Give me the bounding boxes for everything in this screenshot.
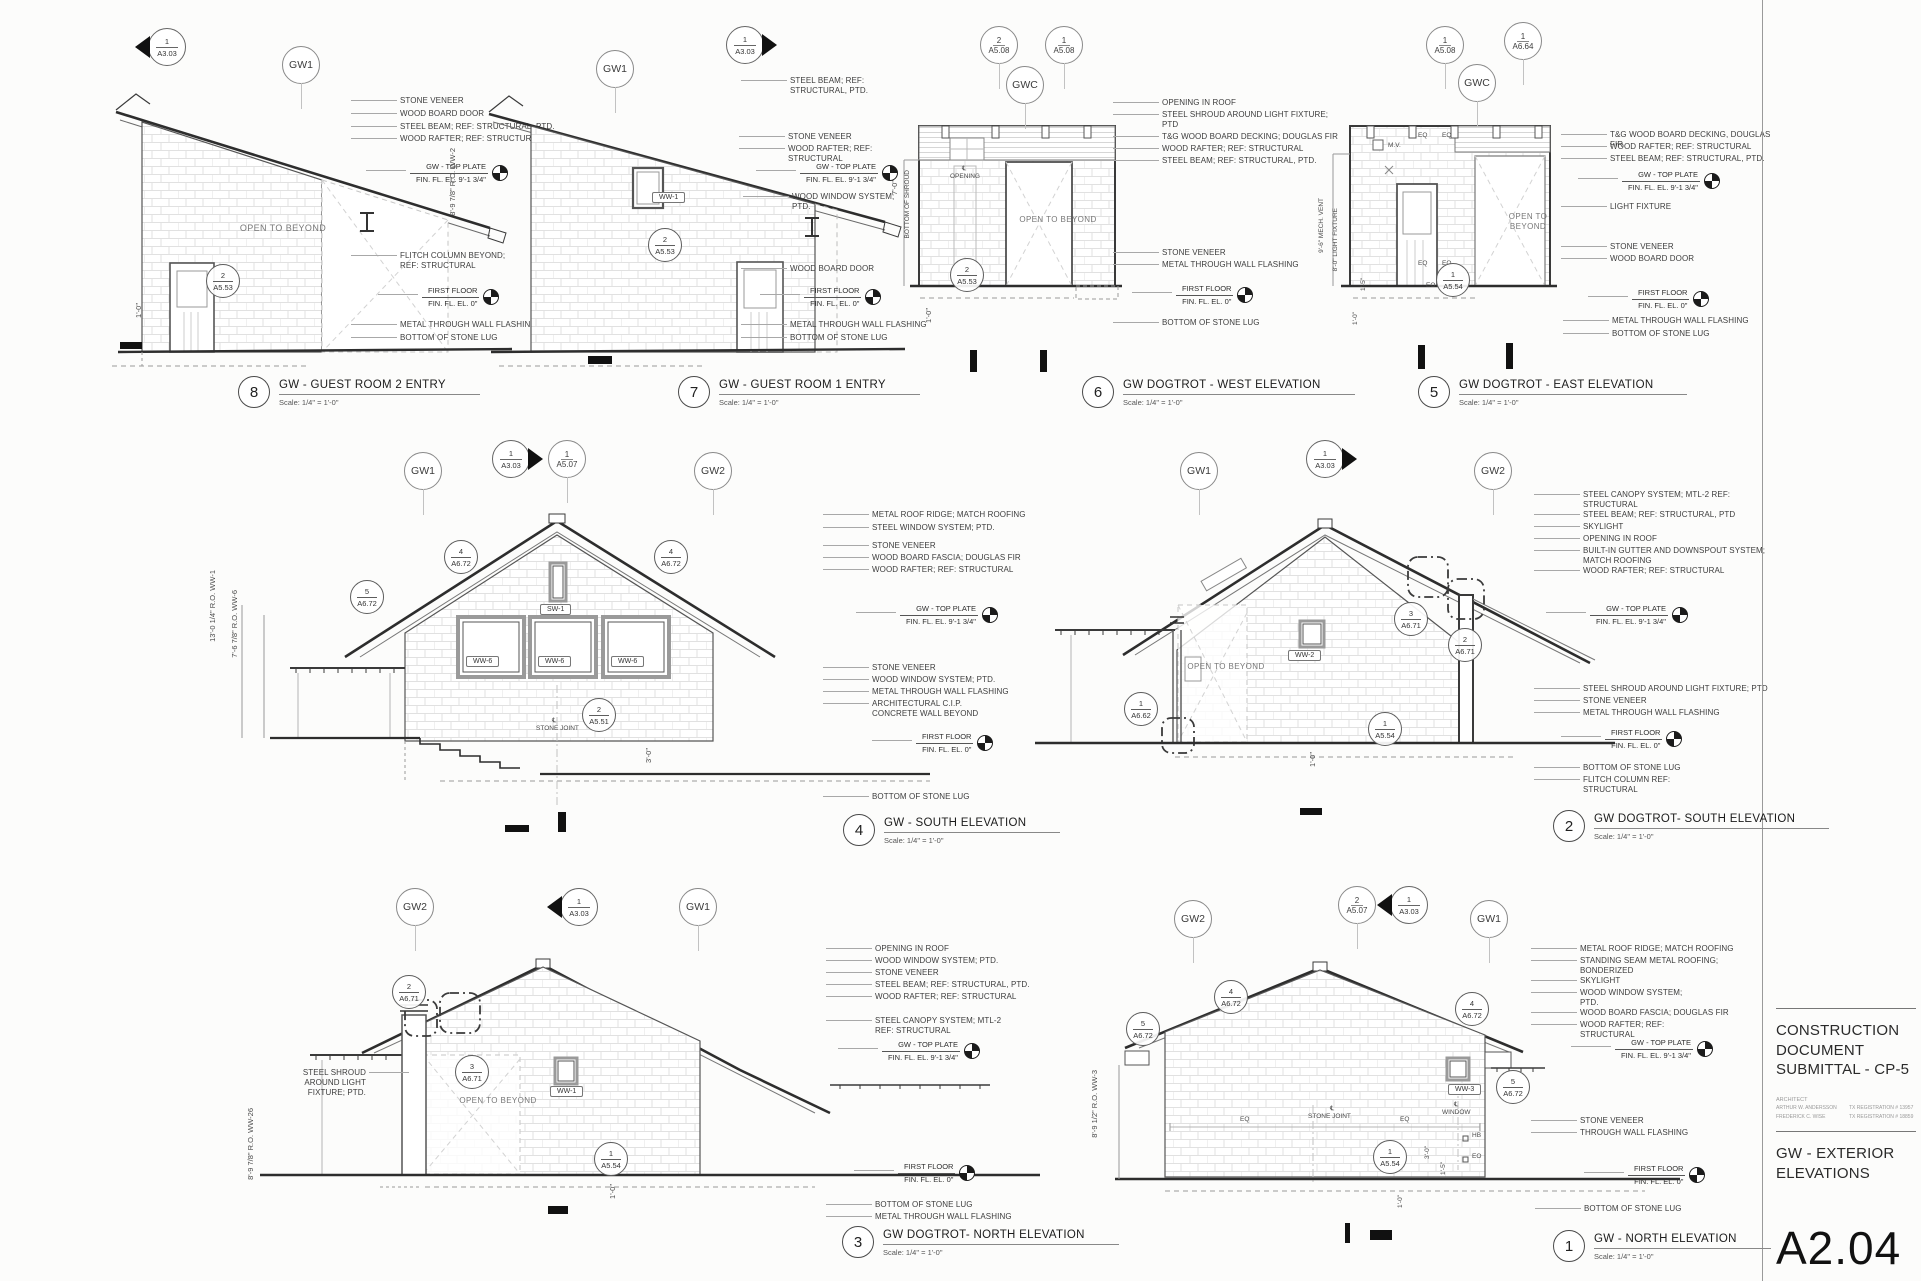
annotation: METAL ROOF RIDGE; MATCH ROOFING [872, 510, 1037, 520]
scale-label: Scale: 1/4" = 1'-0" [1459, 398, 1687, 407]
section-arrow-icon [762, 34, 777, 56]
drawing-title-text: GW - GUEST ROOM 2 ENTRY [279, 376, 480, 395]
eo-label: EO [1426, 282, 1435, 289]
window-tag: WW-3 [1448, 1084, 1481, 1095]
section-marker: 1A3.03 [492, 440, 530, 478]
detail-callout: 5A6.72 [1126, 1012, 1160, 1046]
eq-label: EQ [1418, 260, 1427, 267]
annotation: STONE VENEER [1580, 1116, 1730, 1126]
architect-registration: TX REGISTRATION # 18859 [1849, 1113, 1916, 1122]
drawing-title-text: GW - NORTH ELEVATION [1594, 1230, 1771, 1249]
annotation: METAL THROUGH WALL FLASHING [1612, 316, 1772, 326]
section-arrow-icon [1342, 448, 1357, 470]
grid-bubble: GW1 [596, 50, 634, 88]
dimension-label: 3'-0" [644, 748, 653, 763]
drawing-number: 5 [1418, 376, 1450, 408]
drawing-title: 5 GW DOGTROT - EAST ELEVATIONScale: 1/4"… [1418, 376, 1687, 408]
grid-bubble: GWC [1006, 66, 1044, 104]
eq-label: EQ [1442, 132, 1451, 139]
drawing-title-text: GW DOGTROT - WEST ELEVATION [1123, 376, 1355, 395]
detail-callout: 2A5.53 [950, 258, 984, 292]
window-tag: WW-6 [538, 656, 571, 667]
drawing-number: 7 [678, 376, 710, 408]
detail-callout: 1A5.54 [1368, 712, 1402, 746]
detail-callout: 5A6.72 [1496, 1070, 1530, 1104]
centerline-symbol: ℄ [552, 716, 556, 724]
dimension-label: 8'-9 1/2" R.O. WW-3 [1090, 1070, 1099, 1138]
dimension-label: 7'-6 7/8" R.O. WW-6 [230, 590, 239, 658]
drawing-title-text: GW DOGTROT - EAST ELEVATION [1459, 376, 1687, 395]
level-datum-icon [1689, 1167, 1705, 1183]
window-tag: SW-1 [540, 604, 571, 615]
dimension-label: 7'-0" [890, 180, 899, 195]
annotation: BOTTOM OF STONE LUG [1584, 1204, 1734, 1214]
detail-callout: 4A6.72 [444, 540, 478, 574]
drawing-number: 8 [238, 376, 270, 408]
level-datum: GW - TOP PLATEFIN. FL. EL. 9'-1 3/4" [882, 1040, 980, 1063]
annotation: METAL THROUGH WALL FLASHING [875, 1212, 1040, 1222]
section-cut-bar [1370, 1230, 1392, 1240]
level-datum-icon [1666, 731, 1682, 747]
annotation: WOOD RAFTER; REF: STRUCTURAL [1580, 1020, 1695, 1040]
drawing-title-text: GW - SOUTH ELEVATION [884, 814, 1060, 833]
annotation: STONE VENEER [872, 663, 1022, 673]
dimension-label: 1'-0" [134, 303, 143, 318]
centerline-symbol: ℄ [962, 164, 966, 172]
stone-joint-label: STONE JOINT [536, 725, 579, 732]
grid-bubble: 1A5.08 [1045, 26, 1083, 64]
dimension-label: 1'-5" [1440, 1162, 1447, 1175]
architect-info: ARTHUR W. ANDERSSON TX REGISTRATION # 13… [1776, 1104, 1916, 1121]
level-datum-icon [1237, 287, 1253, 303]
grid-bubble: GW1 [1470, 900, 1508, 938]
dimension-label: 1'-0" [924, 308, 933, 323]
section-cut-bar [588, 356, 612, 364]
window-tag: WW-6 [611, 656, 644, 667]
scale-label: Scale: 1/4" = 1'-0" [1123, 398, 1355, 407]
grid-bubble: GW2 [694, 452, 732, 490]
detail-callout: 4A6.72 [1455, 992, 1489, 1026]
drawing-title: 2 GW DOGTROT- SOUTH ELEVATIONScale: 1/4"… [1553, 810, 1829, 842]
section-cut-bar [970, 350, 977, 372]
grid-bubble: GW2 [396, 888, 434, 926]
centerline-symbol: ℄ [1330, 1104, 1334, 1112]
annotation: BOTTOM OF STONE LUG [872, 792, 1022, 802]
level-datum-icon [865, 289, 881, 305]
detail-callout: 2A6.71 [392, 975, 426, 1009]
level-datum: FIRST FLOORFIN. FL. EL. 0" [898, 1162, 975, 1185]
annotation: BUILT-IN GUTTER AND DOWNSPOUT SYSTEM; MA… [1583, 546, 1768, 566]
drawing-number: 2 [1553, 810, 1585, 842]
drawing-title: 4 GW - SOUTH ELEVATIONScale: 1/4" = 1'-0… [843, 814, 1060, 846]
annotation: ARCHITECTURAL C.I.P. CONCRETE WALL BEYON… [872, 699, 992, 719]
section-marker: 1A3.03 [1306, 440, 1344, 478]
section-cut-bar [120, 342, 142, 349]
elevation-5-dogtrot-east: 1A5.08 1A6.64 GWC EQ EQ M.V. 9'-6" MECH.… [1290, 20, 1790, 420]
hose-bib-label: HB [1472, 1132, 1481, 1139]
annotation: STEEL BEAM; REF: STRUCTURAL, PTD. [875, 980, 1045, 990]
annotation: THROUGH WALL FLASHING [1580, 1128, 1740, 1138]
drawing-title: 7 GW - GUEST ROOM 1 ENTRYScale: 1/4" = 1… [678, 376, 920, 408]
annotation: STEEL BEAM; REF: STRUCTURAL, PTD. [1610, 154, 1780, 164]
dimension-label: 8'-9 7/8" R.O. WW-26 [246, 1108, 255, 1180]
section-arrow-icon [135, 36, 150, 58]
eq-label: EQ [1240, 1116, 1249, 1123]
open-to-beyond-label: OPEN TO BEYOND [1186, 662, 1266, 672]
level-datum-icon [959, 1165, 975, 1181]
scale-label: Scale: 1/4" = 1'-0" [884, 836, 1060, 845]
section-cut-bar [558, 812, 566, 832]
level-datum: GW - TOP PLATEFIN. FL. EL. 9'-1 3/4" [1615, 1038, 1713, 1061]
annotation: METAL THROUGH WALL FLASHING [1583, 708, 1743, 718]
section-cut-bar [1418, 345, 1425, 369]
detail-callout: 5A6.72 [350, 580, 384, 614]
annotation: LIGHT FIXTURE [1610, 202, 1760, 212]
level-datum: GW - TOP PLATEFIN. FL. EL. 9'-1 3/4" [800, 162, 898, 185]
scale-label: Scale: 1/4" = 1'-0" [719, 398, 920, 407]
drawing-sheet: 1A3.03 GW1 OPEN TO BEYOND 2A5.53 1'-0" S… [0, 0, 1921, 1281]
annotation: STONE VENEER [875, 968, 1025, 978]
drawing-title: 1 GW - NORTH ELEVATIONScale: 1/4" = 1'-0… [1553, 1230, 1771, 1262]
grid-bubble: 2A5.08 [980, 26, 1018, 64]
annotation: SKYLIGHT [1583, 522, 1733, 532]
level-datum-icon [982, 607, 998, 623]
dimension-label: 13'-0 1/4" R.O. WW-1 [208, 570, 217, 642]
drawing-number: 6 [1082, 376, 1114, 408]
annotation: WOOD RAFTER; REF: STRUCTURAL [1583, 566, 1748, 576]
detail-callout: 1A5.54 [1436, 263, 1470, 297]
architect-registration: TX REGISTRATION # 13957 [1849, 1104, 1916, 1113]
level-datum: FIRST FLOORFIN. FL. EL. 0" [804, 286, 881, 309]
drawing-number: 4 [843, 814, 875, 846]
dimension-label: 1'-5" [1360, 278, 1367, 291]
dimension-label: 8'-9 7/8" R.O. WW-2 [448, 148, 457, 216]
grid-bubble: 1A6.64 [1504, 22, 1542, 60]
annotation: STEEL SHROUD AROUND LIGHT FIXTURE; PTD. [290, 1068, 366, 1098]
level-datum-icon [1704, 173, 1720, 189]
grid-bubble: 2A5.07 [1338, 886, 1376, 924]
scale-label: Scale: 1/4" = 1'-0" [883, 1248, 1119, 1257]
dimension-label: 9'-6" MECH. VENT [1318, 198, 1325, 253]
detail-callout: 4A6.72 [1214, 980, 1248, 1014]
drawing-title: 8 GW - GUEST ROOM 2 ENTRYScale: 1/4" = 1… [238, 376, 480, 408]
dimension-label: BOTTOM OF SHROUD [904, 170, 911, 239]
level-datum-icon [977, 735, 993, 751]
open-to-beyond-label: OPEN TO BEYOND [438, 1096, 558, 1106]
annotation: SKYLIGHT [1580, 976, 1730, 986]
architect-label: ARCHITECT [1776, 1096, 1916, 1105]
annotation: OPENING IN ROOF [875, 944, 1025, 954]
section-cut-bar [1506, 343, 1513, 369]
section-marker: 1A3.03 [726, 26, 764, 64]
level-datum: FIRST FLOORFIN. FL. EL. 0" [1605, 728, 1682, 751]
drawing-number: 1 [1553, 1230, 1585, 1262]
mechanical-vent-label: M.V. [1388, 142, 1401, 149]
section-arrow-icon [528, 448, 543, 470]
level-datum-icon [1693, 291, 1709, 307]
annotation: STANDING SEAM METAL ROOFING; BONDERIZED [1580, 956, 1725, 976]
scale-label: Scale: 1/4" = 1'-0" [1594, 1252, 1771, 1261]
stone-joint-label: STONE JOINT [1308, 1113, 1351, 1120]
grid-bubble: GW1 [1180, 452, 1218, 490]
elevation-1-gw-north: GW2 2A5.07 1A3.03 GW1 8'-9 1/2" R.O. WW-… [1080, 880, 1780, 1281]
scale-label: Scale: 1/4" = 1'-0" [279, 398, 480, 407]
architect-name: FREDERICK C. WISE [1776, 1113, 1843, 1122]
annotation: WOOD BOARD FASCIA; DOUGLAS FIR [1580, 1008, 1755, 1018]
detail-callout: 2A5.53 [648, 228, 682, 262]
sheet-number: A2.04 [1776, 1221, 1916, 1275]
annotation: WOOD RAFTER; REF: STRUCTURAL [875, 992, 1040, 1002]
section-cut-bar [1040, 350, 1047, 372]
detail-callout: 3A6.71 [1394, 602, 1428, 636]
detail-callout: 3A6.71 [455, 1055, 489, 1089]
drawing-title-text: GW - GUEST ROOM 1 ENTRY [719, 376, 920, 395]
section-arrow-icon [547, 896, 562, 918]
drawing-title-text: GW DOGTROT- SOUTH ELEVATION [1594, 810, 1829, 829]
annotation: STEEL SHROUD AROUND LIGHT FIXTURE; PTD [1583, 684, 1773, 694]
window-centerline-label: WINDOW [1442, 1109, 1471, 1116]
dimension-label: 1'-0" [1352, 312, 1359, 325]
annotation: WOOD WINDOW SYSTEM; PTD. [875, 956, 1035, 966]
detail-callout: 1A5.54 [594, 1142, 628, 1176]
level-datum-icon [1697, 1041, 1713, 1057]
grid-bubble: GW1 [679, 888, 717, 926]
annotation: BOTTOM OF STONE LUG [1612, 329, 1762, 339]
annotation: WOOD RAFTER; REF: STRUCTURAL [872, 565, 1037, 575]
dimension-label: 1'-0" [608, 1184, 617, 1199]
sheet-title: GW - EXTERIOR ELEVATIONS [1776, 1144, 1916, 1183]
window-tag: WW-1 [652, 192, 685, 203]
window-tag: WW-6 [466, 656, 499, 667]
level-datum: FIRST FLOORFIN. FL. EL. 0" [1176, 284, 1253, 307]
open-to-beyond-label: OPEN TO BEYOND [1008, 215, 1108, 225]
level-datum-icon [1672, 607, 1688, 623]
submittal-title: CONSTRUCTION DOCUMENT SUBMITTAL - CP-5 [1776, 1021, 1916, 1080]
annotation: BOTTOM OF STONE LUG [1583, 763, 1733, 773]
detail-callout: 1A5.54 [1373, 1140, 1407, 1174]
annotation: STONE VENEER [1583, 696, 1733, 706]
annotation: STEEL WINDOW SYSTEM; PTD. [872, 523, 1032, 533]
annotation: WOOD WINDOW SYSTEM; PTD. [1580, 988, 1695, 1008]
level-datum-icon [964, 1043, 980, 1059]
elevation-3-dogtrot-north: GW2 1A3.03 GW1 STEEL SHROUD AROUND LIGHT… [220, 880, 1180, 1281]
window-tag: WW-1 [550, 1086, 583, 1097]
dimension-label: 1'-0" [1308, 752, 1317, 767]
section-marker: 1A3.03 [148, 28, 186, 66]
annotation: STONE VENEER [1610, 242, 1760, 252]
section-cut-bar [505, 825, 529, 832]
annotation: STEEL CANOPY SYSTEM; MTL-2 REF: STRUCTUR… [875, 1016, 1015, 1036]
grid-bubble: GW1 [404, 452, 442, 490]
annotation: FLITCH COLUMN REF: STRUCTURAL [1583, 775, 1693, 795]
window-tag: WW-2 [1288, 650, 1321, 661]
detail-callout: 4A6.72 [654, 540, 688, 574]
detail-callout: 2A5.51 [582, 698, 616, 732]
drawing-title: 3 GW DOGTROT- NORTH ELEVATIONScale: 1/4"… [842, 1226, 1119, 1258]
annotation: WOOD BOARD DOOR [1610, 254, 1760, 264]
elevation-2-dogtrot-south: GW1 1A3.03 GW2 OPEN TO BEYOND WW-2 3A6.7… [1030, 440, 1921, 870]
annotation: WOOD BOARD FASCIA; DOUGLAS FIR [872, 553, 1047, 563]
open-to-beyond-label: OPEN TO BEYOND [238, 223, 328, 235]
level-datum: GW - TOP PLATEFIN. FL. EL. 9'-1 3/4" [1622, 170, 1720, 193]
grid-bubble: GW2 [1474, 452, 1512, 490]
open-to-beyond-label: OPEN TO BEYOND [1490, 212, 1566, 233]
centerline-symbol: ℄ [1454, 1100, 1458, 1108]
architect-name: ARTHUR W. ANDERSSON [1776, 1104, 1843, 1113]
dimension-label: 8'-0" LIGHT FIXTURE [1332, 208, 1339, 271]
grid-bubble: 1A5.08 [1426, 26, 1464, 64]
titleblock-rule [1776, 1131, 1916, 1132]
eq-label: EQ [1400, 1116, 1409, 1123]
section-cut-bar [548, 1206, 568, 1214]
annotation: STONE VENEER [872, 541, 1022, 551]
annotation: BOTTOM OF STONE LUG [875, 1200, 1025, 1210]
scale-label: Scale: 1/4" = 1'-0" [1594, 832, 1829, 841]
drawing-title-text: GW DOGTROT- NORTH ELEVATION [883, 1226, 1119, 1245]
annotation: METAL ROOF RIDGE; MATCH ROOFING [1580, 944, 1750, 954]
elevation-2-drawing [1035, 495, 1615, 835]
opening-label: OPENING [950, 173, 980, 180]
detail-callout: 2A6.71 [1448, 628, 1482, 662]
titleblock: CONSTRUCTION DOCUMENT SUBMITTAL - CP-5 A… [1776, 1008, 1916, 1275]
annotation: WOOD WINDOW SYSTEM; PTD. [792, 192, 897, 212]
drawing-number: 3 [842, 1226, 874, 1258]
annotation: WOOD RAFTER; REF: STRUCTURAL [1610, 142, 1770, 152]
titleblock-divider [1762, 0, 1763, 1281]
section-cut-bar [1345, 1223, 1350, 1243]
annotation: WOOD RAFTER; REF: STRUCTURAL [788, 144, 893, 164]
level-datum-icon [882, 165, 898, 181]
detail-callout: 1A6.62 [1124, 692, 1158, 726]
annotation: METAL THROUGH WALL FLASHING [872, 687, 1037, 697]
level-datum: GW - TOP PLATEFIN. FL. EL. 9'-1 3/4" [1590, 604, 1688, 627]
eq-label: EQ [1418, 132, 1427, 139]
titleblock-rule [1776, 1008, 1916, 1009]
dimension-label: 1'-0" [1397, 1195, 1404, 1208]
annotation: OPENING IN ROOF [1583, 534, 1733, 544]
annotation: STEEL CANOPY SYSTEM; MTL-2 REF: STRUCTUR… [1583, 490, 1738, 510]
grid-bubble: 1A5.07 [548, 440, 586, 478]
section-arrow-icon [1377, 894, 1392, 916]
grid-bubble: GWC [1458, 64, 1496, 102]
eo-label: EO [1472, 1153, 1481, 1160]
level-datum: FIRST FLOORFIN. FL. EL. 0" [1628, 1164, 1705, 1187]
drawing-title: 6 GW DOGTROT - WEST ELEVATIONScale: 1/4"… [1082, 376, 1355, 408]
annotation: WOOD WINDOW SYSTEM; PTD. [872, 675, 1032, 685]
section-cut-bar [1300, 808, 1322, 815]
annotation: STEEL BEAM; REF: STRUCTURAL, PTD [1583, 510, 1748, 520]
level-datum: GW - TOP PLATEFIN. FL. EL. 9'-1 3/4" [900, 604, 998, 627]
grid-bubble: GW2 [1174, 900, 1212, 938]
detail-callout: 2A5.53 [206, 264, 240, 298]
level-datum: FIRST FLOORFIN. FL. EL. 0" [1632, 288, 1709, 311]
elevation-4-drawing [230, 505, 950, 845]
section-marker: 1A3.03 [560, 888, 598, 926]
dimension-label: 3'-0" [1424, 1146, 1431, 1159]
level-datum: FIRST FLOORFIN. FL. EL. 0" [916, 732, 993, 755]
section-marker: 1A3.03 [1390, 886, 1428, 924]
grid-bubble: GW1 [282, 46, 320, 84]
